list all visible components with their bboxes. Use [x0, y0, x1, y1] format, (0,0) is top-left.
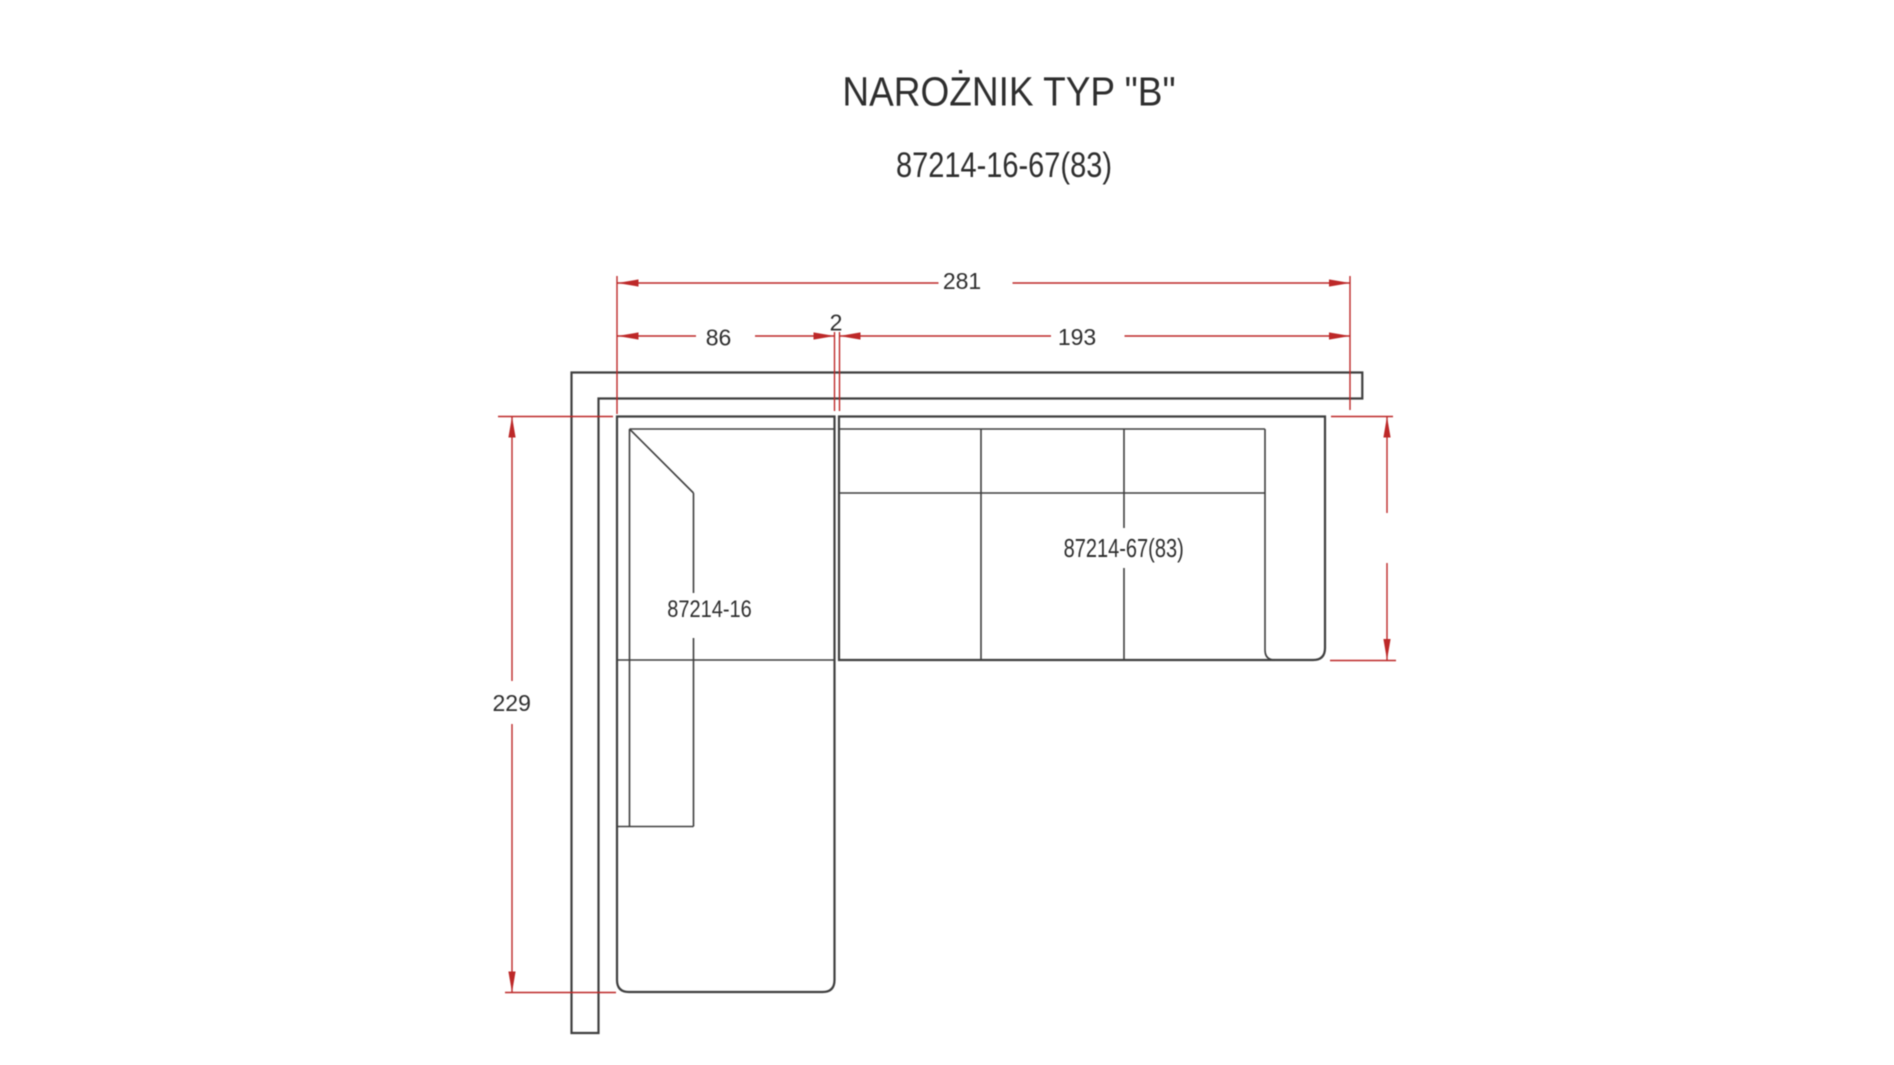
svg-text:NAROŻNIK TYP "B": NAROŻNIK TYP "B"	[842, 70, 1175, 115]
svg-text:86: 86	[706, 324, 732, 350]
svg-text:281: 281	[943, 268, 981, 294]
svg-text:87214-16: 87214-16	[667, 595, 751, 622]
svg-text:2: 2	[830, 309, 843, 335]
svg-text:193: 193	[1058, 324, 1096, 350]
svg-text:229: 229	[493, 690, 531, 716]
svg-text:87214-16-67(83): 87214-16-67(83)	[896, 145, 1112, 184]
svg-text:87214-67(83): 87214-67(83)	[1064, 534, 1184, 563]
